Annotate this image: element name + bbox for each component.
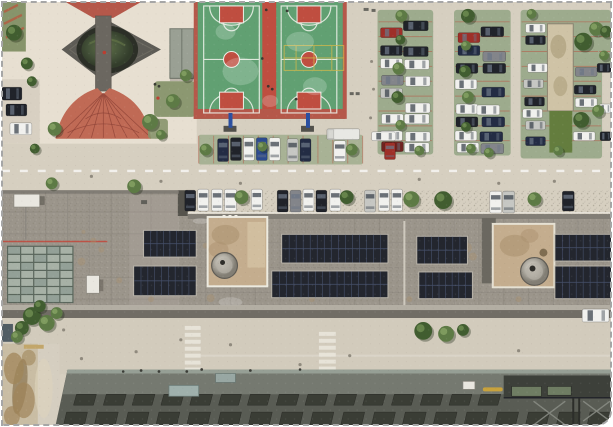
car-rear-window xyxy=(397,143,400,151)
car-rear-window xyxy=(589,133,592,140)
tree-highlight xyxy=(393,93,398,98)
car-windshield xyxy=(226,193,236,197)
figure xyxy=(158,85,161,88)
crosswalk-bar xyxy=(319,353,336,357)
south-parapet xyxy=(2,310,611,318)
tree-highlight xyxy=(181,71,186,76)
car-windshield xyxy=(527,110,531,117)
window xyxy=(420,394,443,405)
stain xyxy=(207,294,215,302)
car-rear-window xyxy=(540,37,543,44)
window xyxy=(556,412,580,425)
manhole xyxy=(372,88,375,91)
tree-highlight xyxy=(462,42,466,46)
window xyxy=(495,412,519,425)
window xyxy=(526,412,550,425)
tree-highlight xyxy=(555,147,559,151)
tree-highlight xyxy=(52,309,57,314)
car-rear-window xyxy=(335,156,345,158)
car-windshield xyxy=(530,138,534,145)
car-windshield xyxy=(253,193,262,197)
manhole xyxy=(369,116,372,119)
skylight-pane xyxy=(47,255,59,262)
teal-panel-2 xyxy=(216,373,236,382)
stain xyxy=(116,277,122,283)
car-windshield xyxy=(578,133,582,140)
car-rear-window xyxy=(389,133,392,140)
car-rear-window xyxy=(422,115,425,123)
car-windshield xyxy=(331,193,340,197)
car-rear-window xyxy=(540,138,543,145)
car-windshield xyxy=(232,142,241,147)
car-rear-window xyxy=(423,104,426,112)
car-rear-window xyxy=(540,25,543,32)
car-rear-window xyxy=(226,205,236,208)
car-windshield xyxy=(580,99,584,106)
yellow-pipe xyxy=(483,387,503,391)
manhole xyxy=(90,175,93,178)
figure xyxy=(261,57,264,60)
skylight-pane xyxy=(21,279,33,286)
skylight-pane xyxy=(34,287,46,294)
car-rear-window xyxy=(504,207,514,210)
window xyxy=(132,394,155,405)
skylight-pane xyxy=(47,287,59,294)
person xyxy=(103,51,107,55)
car-rear-window xyxy=(499,65,502,73)
truck-cab xyxy=(328,130,334,139)
tree-highlight xyxy=(460,67,465,72)
skylight-pane xyxy=(47,271,59,278)
car-windshield xyxy=(219,143,228,148)
car-windshield xyxy=(409,115,414,123)
car-windshield xyxy=(386,115,390,123)
stain xyxy=(148,296,154,302)
car-windshield xyxy=(199,193,208,197)
car-windshield xyxy=(409,61,414,69)
car-windshield xyxy=(301,143,310,148)
car-rear-window xyxy=(258,155,267,158)
car-rear-window xyxy=(199,205,208,208)
tree-highlight xyxy=(259,143,263,147)
tree-highlight xyxy=(462,123,466,127)
skylight-pane xyxy=(60,279,72,286)
car-rear-window xyxy=(542,65,545,72)
car-windshield xyxy=(288,143,297,148)
tree-highlight xyxy=(236,192,242,198)
car-rear-window xyxy=(497,145,500,153)
figure xyxy=(158,370,161,373)
car-windshield xyxy=(529,98,533,105)
car-rear-window xyxy=(471,80,474,88)
low-wall xyxy=(24,345,44,349)
tree-highlight xyxy=(459,325,464,330)
tree-highlight xyxy=(576,35,584,43)
window xyxy=(305,394,328,405)
stain xyxy=(516,296,522,302)
car-windshield xyxy=(376,133,381,140)
figure xyxy=(185,370,188,373)
stain xyxy=(78,258,86,266)
window xyxy=(248,412,272,425)
window xyxy=(341,412,365,425)
window xyxy=(247,394,270,405)
tree-highlight xyxy=(22,59,27,64)
car-windshield xyxy=(602,133,604,140)
car-rear-window xyxy=(421,22,424,30)
car-windshield xyxy=(461,144,465,152)
blue-roof-chip xyxy=(2,324,13,342)
car-windshield xyxy=(564,195,574,199)
car-windshield xyxy=(530,37,534,44)
car-rear-window xyxy=(396,47,399,55)
wear-patch xyxy=(262,95,278,107)
car-windshield xyxy=(304,193,313,197)
car-windshield xyxy=(460,105,464,113)
car-windshield xyxy=(385,29,389,37)
car-windshield xyxy=(486,118,491,126)
car-windshield xyxy=(409,144,414,152)
car-rear-window xyxy=(472,118,475,126)
skylight-pane xyxy=(34,263,46,270)
window xyxy=(219,394,242,405)
skylight-pane xyxy=(60,287,72,294)
car-rear-window xyxy=(301,156,310,159)
car-rear-window xyxy=(497,28,500,36)
window xyxy=(402,412,426,425)
screenshot-frame xyxy=(0,0,613,427)
window xyxy=(74,394,97,405)
window xyxy=(125,412,149,425)
car-rear-window xyxy=(472,105,475,113)
stain xyxy=(469,253,477,261)
tree-highlight xyxy=(485,149,489,153)
car-rear-window xyxy=(474,47,477,55)
car-windshield xyxy=(408,22,413,30)
skylight-pane xyxy=(47,295,59,302)
car-windshield xyxy=(393,193,402,197)
manhole xyxy=(62,328,65,331)
car-windshield xyxy=(588,310,593,321)
expansion-joint xyxy=(403,221,405,306)
car-rear-window xyxy=(591,99,594,106)
bench xyxy=(350,92,354,95)
car-rear-window xyxy=(253,205,262,207)
bench xyxy=(141,200,147,204)
manhole xyxy=(229,343,232,346)
figure xyxy=(122,370,125,373)
car-rear-window xyxy=(608,105,610,112)
wear-patch xyxy=(303,77,327,95)
car-rear-window xyxy=(213,205,222,208)
window xyxy=(218,412,242,425)
car-rear-window xyxy=(474,34,477,42)
car-windshield xyxy=(186,194,195,198)
aerial-photo xyxy=(2,2,611,425)
person xyxy=(156,97,159,100)
car-rear-window xyxy=(270,155,279,158)
stain xyxy=(90,238,96,244)
manhole xyxy=(497,182,500,185)
car xyxy=(482,117,505,127)
car-windshield xyxy=(600,65,603,72)
car-rear-window xyxy=(540,122,543,129)
tree-highlight xyxy=(397,11,402,16)
car-windshield xyxy=(530,122,534,129)
car-windshield xyxy=(487,65,492,73)
manhole xyxy=(179,338,182,341)
car-windshield xyxy=(385,47,389,55)
tree-highlight xyxy=(168,96,174,102)
car-rear-window xyxy=(21,105,24,115)
figure xyxy=(140,369,143,372)
car-windshield xyxy=(410,133,415,141)
window xyxy=(464,412,488,425)
car-rear-window xyxy=(26,124,29,134)
car-rear-window xyxy=(491,207,501,210)
manhole xyxy=(159,180,162,183)
car-rear-window xyxy=(288,156,297,159)
car-windshield xyxy=(335,144,345,148)
crosswalk-bar xyxy=(185,340,201,344)
car-rear-window xyxy=(386,155,395,157)
wear-patch xyxy=(223,57,259,85)
tree-highlight xyxy=(201,145,206,150)
car-windshield xyxy=(504,195,514,199)
skylight-pane xyxy=(60,271,72,278)
car-windshield xyxy=(580,69,584,76)
skylight-pane xyxy=(8,271,20,278)
stain xyxy=(81,230,85,234)
skylight-pane xyxy=(60,247,72,254)
car xyxy=(481,27,504,37)
car-rear-window xyxy=(591,69,594,76)
car-rear-window xyxy=(607,65,609,72)
tree-highlight xyxy=(467,145,471,149)
car-rear-window xyxy=(393,205,402,208)
bench xyxy=(356,92,360,95)
tree-highlight xyxy=(416,147,420,151)
skylight-pane xyxy=(8,263,20,270)
car-windshield xyxy=(487,53,492,61)
manhole xyxy=(239,182,242,185)
window xyxy=(310,412,334,425)
car-windshield xyxy=(528,80,532,87)
car-windshield xyxy=(386,76,390,84)
car xyxy=(600,132,611,141)
car-rear-window xyxy=(396,132,399,140)
car-windshield xyxy=(245,142,254,147)
car-windshield xyxy=(481,106,486,114)
car-rear-window xyxy=(304,205,313,208)
car-windshield xyxy=(530,25,534,32)
tree-highlight xyxy=(417,324,425,332)
car-rear-window xyxy=(538,80,541,87)
wear-patch xyxy=(286,32,314,52)
car-rear-window xyxy=(380,205,389,208)
car-rear-window xyxy=(397,76,400,84)
car-rear-window xyxy=(499,53,502,61)
skylight-pane xyxy=(60,263,72,270)
car-rear-window xyxy=(498,118,501,126)
manhole xyxy=(348,354,351,357)
car-rear-window xyxy=(219,156,228,159)
car xyxy=(455,79,477,89)
car-rear-window xyxy=(590,86,593,93)
car-rear-window xyxy=(317,206,326,209)
car-windshield xyxy=(385,89,389,97)
skylight-pane xyxy=(21,271,33,278)
car-windshield xyxy=(291,194,300,198)
manhole xyxy=(370,60,373,63)
tree-highlight xyxy=(35,302,40,307)
car-windshield xyxy=(270,142,279,147)
manhole xyxy=(80,357,83,360)
car-windshield xyxy=(385,60,389,68)
tree-highlight xyxy=(405,193,412,200)
bench xyxy=(372,9,376,12)
figure xyxy=(271,88,274,91)
tree-highlight xyxy=(600,52,604,56)
tree-highlight xyxy=(529,194,535,200)
glass-skylight xyxy=(7,246,74,303)
stain xyxy=(406,296,412,302)
car-windshield xyxy=(213,193,222,197)
car-rear-window xyxy=(496,133,499,141)
car-windshield xyxy=(579,86,583,93)
car-rear-window xyxy=(423,133,426,141)
tree-highlight xyxy=(342,192,348,198)
tree-highlight xyxy=(397,121,401,125)
tree-highlight xyxy=(347,145,352,150)
car-windshield xyxy=(532,65,536,72)
tree-highlight xyxy=(436,193,444,201)
skylight-pane xyxy=(47,279,59,286)
car-rear-window xyxy=(16,88,19,99)
figure xyxy=(265,9,268,12)
car-rear-window xyxy=(498,88,501,96)
skylight-pane xyxy=(34,247,46,254)
crosswalk-bar xyxy=(185,361,201,365)
car-rear-window xyxy=(186,206,195,208)
window xyxy=(391,394,414,405)
window xyxy=(94,412,118,425)
car-rear-window xyxy=(245,155,254,158)
tree-highlight xyxy=(157,131,161,135)
tree-highlight xyxy=(528,10,532,14)
car-rear-window xyxy=(423,77,426,85)
window xyxy=(433,412,457,425)
car-rear-window xyxy=(232,155,241,158)
crosswalk-bar xyxy=(319,332,336,336)
car xyxy=(573,132,595,141)
tree-highlight xyxy=(394,64,399,69)
car-windshield xyxy=(485,28,490,36)
crosswalk-bar xyxy=(185,333,201,337)
tree-highlight xyxy=(25,309,33,317)
penthouse-1 xyxy=(208,215,268,286)
car-windshield xyxy=(408,48,413,56)
figure xyxy=(286,10,289,13)
crosswalk-bar xyxy=(185,354,201,358)
skylight-pane xyxy=(21,295,33,302)
car-windshield xyxy=(278,194,287,198)
window xyxy=(187,412,211,425)
window xyxy=(156,412,180,425)
car-rear-window xyxy=(366,206,375,209)
car-rear-window xyxy=(539,98,542,105)
tree-highlight xyxy=(129,181,135,187)
window xyxy=(276,394,299,405)
car-rear-window xyxy=(564,206,574,208)
crosswalk-bar xyxy=(319,346,336,350)
car-rear-window xyxy=(278,206,287,209)
car-windshield xyxy=(410,77,415,85)
car-windshield xyxy=(491,195,501,199)
tree-highlight xyxy=(41,317,48,324)
tree-highlight xyxy=(47,179,52,184)
wear-patch xyxy=(193,218,209,224)
tree-highlight xyxy=(28,78,32,82)
bench xyxy=(364,8,369,11)
car-windshield xyxy=(14,124,18,134)
car-rear-window xyxy=(421,48,424,56)
window xyxy=(103,394,126,405)
skylight-pane xyxy=(47,263,59,270)
skylight-pane xyxy=(34,255,46,262)
tree-highlight xyxy=(463,93,468,98)
car-rear-window xyxy=(471,132,474,140)
south-road xyxy=(2,318,611,374)
window xyxy=(363,394,386,405)
window xyxy=(478,394,501,405)
car-rear-window xyxy=(537,110,540,117)
skylight-pane xyxy=(60,255,72,262)
car-rear-window xyxy=(291,206,300,209)
car-windshield xyxy=(486,88,491,96)
crosswalk-bar xyxy=(319,360,336,364)
figure xyxy=(267,85,270,88)
skylight-pane xyxy=(8,287,20,294)
car-windshield xyxy=(366,194,375,198)
crosswalk-bar xyxy=(185,347,201,351)
tree-highlight xyxy=(8,27,15,34)
window xyxy=(279,412,303,425)
window xyxy=(372,412,396,425)
figure xyxy=(154,83,157,86)
manhole xyxy=(418,178,421,181)
dark-building xyxy=(56,370,611,425)
skylight-pane xyxy=(21,287,33,294)
car-rear-window xyxy=(493,106,496,114)
skylight-pane xyxy=(21,247,33,254)
wear-patch xyxy=(216,24,236,40)
car xyxy=(574,85,596,94)
skylight-pane xyxy=(8,279,20,286)
skylight-pane xyxy=(21,255,33,262)
car-windshield xyxy=(6,88,10,99)
teal-panel-1 xyxy=(169,385,199,396)
tree-highlight xyxy=(397,36,401,40)
car-rear-window xyxy=(608,133,609,140)
parking-shed xyxy=(547,24,573,153)
figure xyxy=(200,368,203,371)
tree-highlight xyxy=(12,332,17,337)
tree-highlight xyxy=(49,124,55,130)
car-windshield xyxy=(484,133,489,141)
figure xyxy=(295,98,298,101)
car xyxy=(482,87,505,97)
